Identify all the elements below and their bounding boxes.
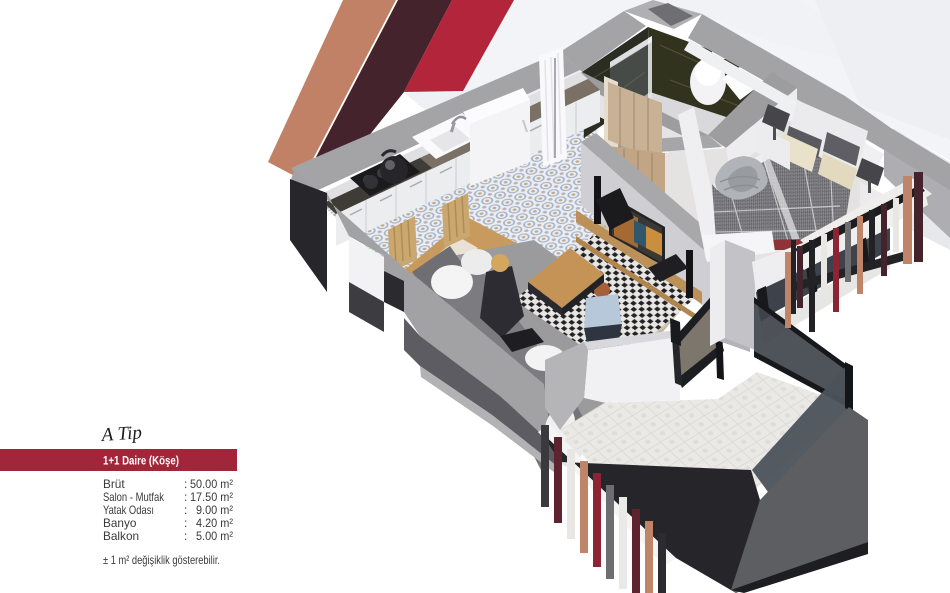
svg-text:Banyo: Banyo bbox=[103, 516, 137, 530]
svg-text:Salon - Mutfak: Salon - Mutfak bbox=[103, 490, 164, 504]
svg-text:Balkon: Balkon bbox=[103, 529, 139, 543]
svg-text:5.00 m²: 5.00 m² bbox=[196, 529, 233, 543]
svg-text::: : bbox=[184, 490, 187, 504]
svg-text:Yatak Odası: Yatak Odası bbox=[103, 503, 154, 517]
svg-text:± 1 m² değişiklik gösterebili: ± 1 m² değişiklik gösterebilir. bbox=[103, 553, 220, 567]
svg-text::: : bbox=[184, 516, 187, 530]
svg-text:50.00 m²: 50.00 m² bbox=[190, 477, 233, 491]
svg-text:1+1 Daire (Köşe): 1+1 Daire (Köşe) bbox=[103, 454, 179, 468]
svg-text:Brüt: Brüt bbox=[103, 477, 125, 491]
svg-text:9.00 m²: 9.00 m² bbox=[196, 503, 233, 517]
svg-text::: : bbox=[184, 477, 187, 491]
svg-text:17.50 m²: 17.50 m² bbox=[190, 490, 233, 504]
svg-text:4.20 m²: 4.20 m² bbox=[196, 516, 233, 530]
svg-text::: : bbox=[184, 503, 187, 517]
svg-text:A Tip: A Tip bbox=[99, 422, 143, 446]
svg-text::: : bbox=[184, 529, 187, 543]
